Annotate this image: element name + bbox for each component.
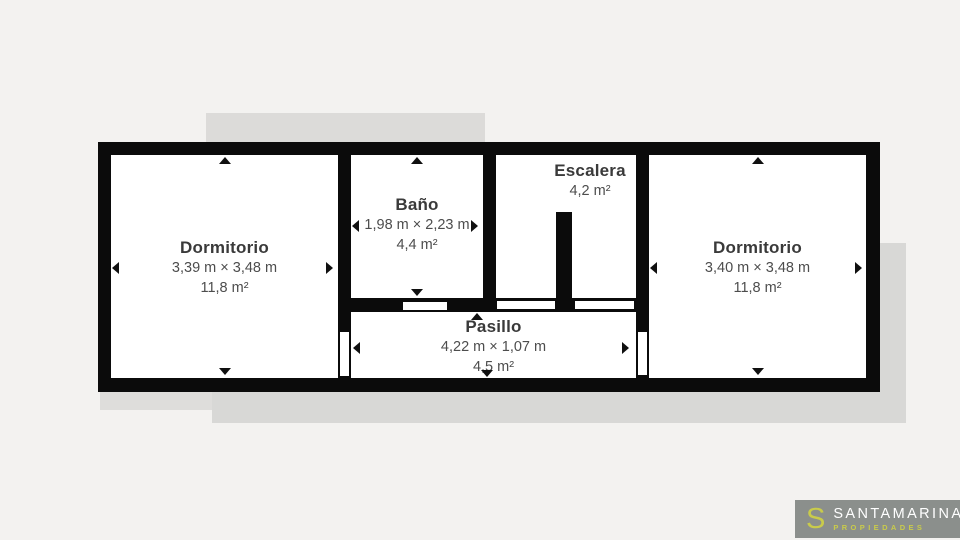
shadow-bottom-left-block bbox=[100, 392, 212, 410]
shadow-bottom-block bbox=[212, 392, 906, 423]
arrow-up-icon bbox=[752, 157, 764, 164]
arrow-right-icon bbox=[855, 262, 862, 274]
door-dormleft-pasillo bbox=[340, 332, 349, 376]
room-dimensions: 3,40 m × 3,48 m bbox=[649, 258, 866, 278]
room-name: Pasillo bbox=[351, 316, 636, 337]
arrow-left-icon bbox=[650, 262, 657, 274]
room-area: 11,8 m² bbox=[111, 278, 338, 298]
room-area: 4,4 m² bbox=[351, 235, 483, 255]
room-dimensions: 3,39 m × 3,48 m bbox=[111, 258, 338, 278]
arrow-left-icon bbox=[112, 262, 119, 274]
opening-escalera-left bbox=[497, 301, 555, 309]
stair-divider-wall bbox=[556, 212, 572, 312]
room-area: 11,8 m² bbox=[649, 278, 866, 298]
room-dormitorio-right: Dormitorio 3,40 m × 3,48 m 11,8 m² bbox=[649, 237, 866, 298]
shadow-top-block bbox=[206, 113, 485, 145]
arrow-down-icon bbox=[481, 370, 493, 377]
arrow-down-icon bbox=[219, 368, 231, 375]
brand-s-icon: S bbox=[806, 505, 825, 533]
brand-text: SANTAMARINA PROPIEDADES bbox=[833, 506, 960, 532]
arrow-left-icon bbox=[352, 220, 359, 232]
door-pasillo-dormright bbox=[638, 332, 647, 375]
brand-name: SANTAMARINA bbox=[833, 506, 960, 522]
arrow-right-icon bbox=[622, 342, 629, 354]
room-dimensions: 1,98 m × 2,23 m bbox=[351, 215, 483, 235]
room-dimensions: 4,22 m × 1,07 m bbox=[351, 337, 636, 357]
floorplan-page: Dormitorio 3,39 m × 3,48 m 11,8 m² Baño … bbox=[0, 0, 960, 540]
brand-tagline: PROPIEDADES bbox=[833, 523, 960, 532]
room-area: 4,5 m² bbox=[351, 357, 636, 377]
room-pasillo: Pasillo 4,22 m × 1,07 m 4,5 m² bbox=[351, 316, 636, 377]
door-bano-pasillo bbox=[403, 302, 447, 310]
room-name: Dormitorio bbox=[111, 237, 338, 258]
brand-badge: S SANTAMARINA PROPIEDADES bbox=[795, 500, 960, 538]
opening-escalera-right bbox=[575, 301, 634, 309]
room-name: Escalera bbox=[520, 160, 660, 181]
arrow-right-icon bbox=[471, 220, 478, 232]
room-name: Dormitorio bbox=[649, 237, 866, 258]
room-bano: Baño 1,98 m × 2,23 m 4,4 m² bbox=[351, 194, 483, 255]
room-dormitorio-left: Dormitorio 3,39 m × 3,48 m 11,8 m² bbox=[111, 237, 338, 298]
arrow-up-icon bbox=[471, 313, 483, 320]
arrow-up-icon bbox=[219, 157, 231, 164]
shadow-right-block bbox=[878, 243, 906, 403]
room-name: Baño bbox=[351, 194, 483, 215]
arrow-left-icon bbox=[353, 342, 360, 354]
room-area: 4,2 m² bbox=[520, 181, 660, 201]
room-escalera: Escalera 4,2 m² bbox=[520, 160, 660, 201]
wall-bano-escalera bbox=[483, 155, 496, 312]
arrow-down-icon bbox=[752, 368, 764, 375]
arrow-down-icon bbox=[411, 289, 423, 296]
arrow-right-icon bbox=[326, 262, 333, 274]
arrow-up-icon bbox=[411, 157, 423, 164]
